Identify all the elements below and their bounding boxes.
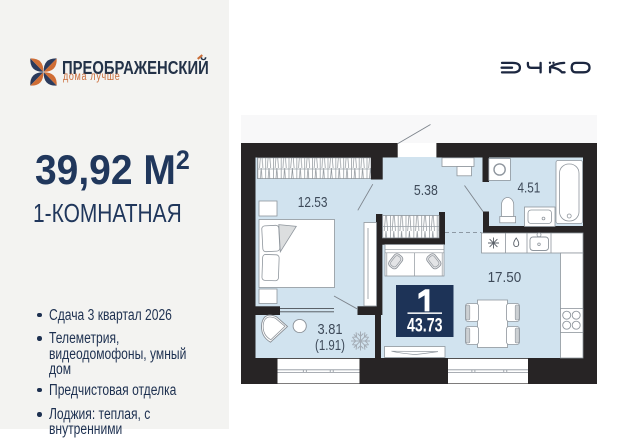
svg-text:12.53: 12.53 [298,195,328,211]
svg-text:4.51: 4.51 [518,181,541,197]
svg-text:43.73: 43.73 [407,315,443,337]
svg-text:17.50: 17.50 [488,270,522,286]
svg-text:5.38: 5.38 [414,183,438,199]
svg-text:3.81: 3.81 [318,322,343,338]
svg-text:(1.91): (1.91) [315,338,345,354]
